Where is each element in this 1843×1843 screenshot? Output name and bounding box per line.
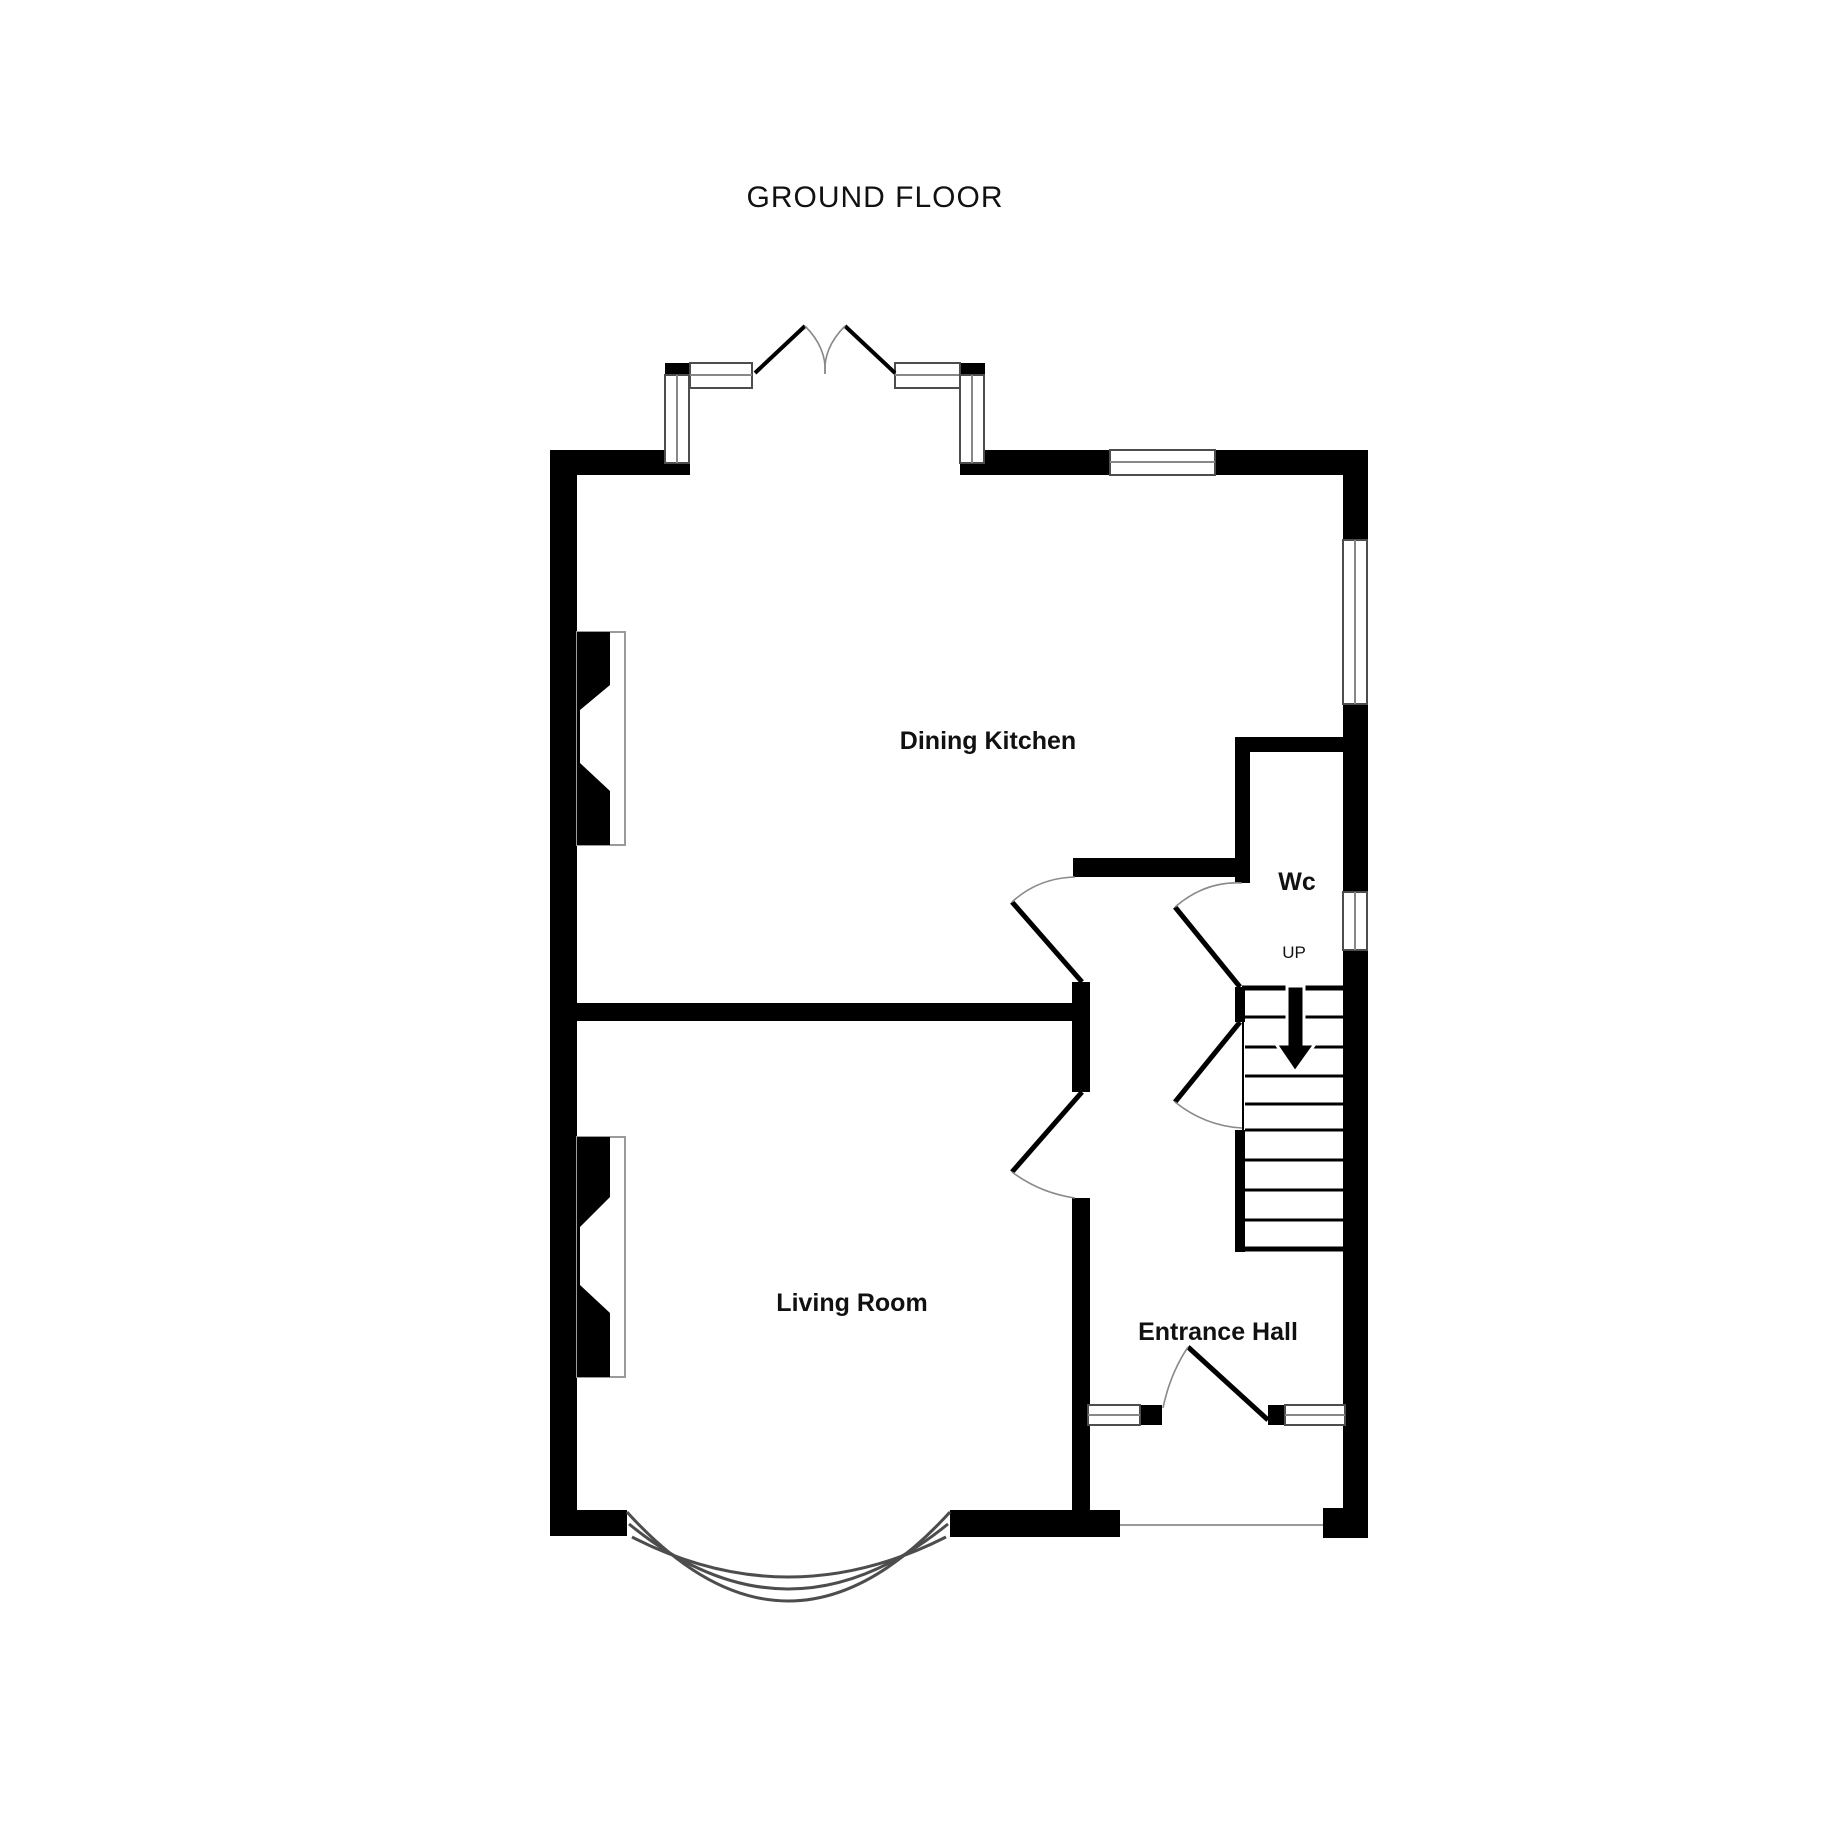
wall-right-middle <box>1343 704 1368 892</box>
wall-kitchen-hall-divider <box>1073 858 1237 877</box>
wall-front-door-jamb-left <box>1140 1405 1162 1425</box>
door-swing <box>1012 1172 1075 1198</box>
wall-living-bottom <box>950 1510 1120 1537</box>
wall-top-middle <box>985 450 1110 475</box>
front-door <box>1163 1347 1268 1420</box>
page-title: GROUND FLOOR <box>746 181 1003 214</box>
door-leaf <box>1012 1092 1082 1172</box>
bay-window-left-side <box>665 375 689 463</box>
understairs-door <box>1175 1022 1242 1128</box>
wall-top-right <box>1215 450 1343 475</box>
floor-plan-drawing: GROUND FLOOR Dining Kitchen Wc UP Living… <box>0 0 1843 1843</box>
wall-kitchen-living-divider <box>577 1003 1075 1021</box>
room-label-dining-kitchen: Dining Kitchen <box>900 727 1076 755</box>
french-door-leaf-right <box>845 326 895 373</box>
wall-left <box>550 450 577 1512</box>
floor-plan-page: GROUND FLOOR Dining Kitchen Wc UP Living… <box>0 0 1843 1843</box>
chimney-breast-living <box>577 1137 625 1377</box>
door-leaf <box>1175 907 1240 987</box>
wall-wc-top <box>1235 737 1343 752</box>
kitchen-top-window <box>1110 450 1215 475</box>
door-swing <box>1012 877 1075 902</box>
hall-window-left-of-door <box>1088 1405 1140 1425</box>
wall-door-stub-upper <box>1072 982 1090 1092</box>
door-leaf <box>1188 1347 1268 1420</box>
stairs-up-label: UP <box>1282 943 1306 962</box>
walls <box>550 363 1368 1538</box>
french-door-swing-left <box>805 326 825 374</box>
french-door-leaf-left <box>755 326 805 373</box>
stairs-right-window <box>1343 892 1367 950</box>
door-leaf <box>1175 1022 1240 1102</box>
wc-lobby-door <box>1175 883 1242 987</box>
wall-right-foot-block <box>1323 1508 1368 1538</box>
bay-window-right-side <box>960 375 984 463</box>
bay-cap-left-top <box>665 363 690 375</box>
kitchen-door <box>1012 877 1082 982</box>
room-label-entrance-hall: Entrance Hall <box>1138 1318 1298 1346</box>
wall-bottom-left-corner <box>550 1510 627 1536</box>
room-label-living-room: Living Room <box>776 1289 927 1317</box>
wall-door-stub-lower <box>1072 1198 1090 1513</box>
curved-bay-window <box>627 1512 950 1601</box>
room-label-wc: Wc <box>1278 868 1316 896</box>
door-swing <box>1175 883 1242 907</box>
french-door-swing-right <box>825 326 845 374</box>
staircase <box>1235 986 1345 1249</box>
stairs-direction-arrow <box>1276 986 1315 1072</box>
bay-cap-left-bottom <box>665 463 690 475</box>
bay-window-front-left <box>690 363 752 388</box>
wall-right-lower <box>1343 950 1368 1537</box>
wall-wc-left <box>1235 737 1250 883</box>
chimney-breast-dining <box>577 632 625 845</box>
labels: GROUND FLOOR Dining Kitchen Wc UP Living… <box>746 181 1315 1346</box>
living-room-door <box>1012 1092 1082 1198</box>
windows <box>665 363 1367 1425</box>
bay-window-front-right <box>895 363 960 388</box>
wall-top-left <box>550 450 665 475</box>
wall-front-door-jamb-right <box>1268 1405 1285 1425</box>
bay-arc-inner <box>632 1537 946 1577</box>
wall-right-upper <box>1343 450 1368 540</box>
hall-window-right-of-door <box>1285 1405 1345 1425</box>
french-doors <box>755 326 895 374</box>
door-leaf <box>1012 902 1082 982</box>
door-swing <box>1163 1347 1188 1408</box>
bay-cap-right-top <box>960 363 985 375</box>
kitchen-right-window <box>1343 540 1367 704</box>
door-swing <box>1175 1102 1242 1128</box>
bay-cap-right-bottom <box>960 463 985 475</box>
